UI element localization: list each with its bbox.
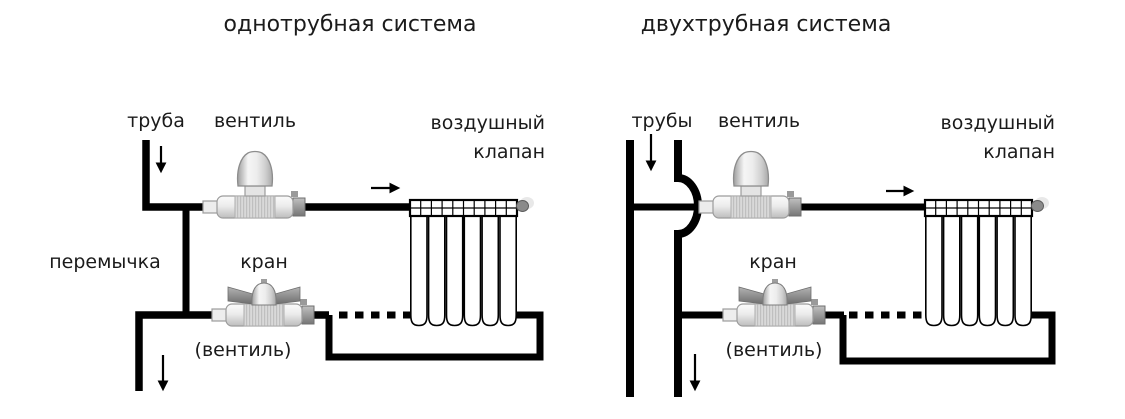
label-tap: кран xyxy=(749,251,797,273)
valve-knob-icon xyxy=(699,152,801,219)
label-pipes: трубы xyxy=(631,110,692,132)
radiator xyxy=(410,197,534,326)
heating-schematic-canvas: однотрубная система двухтрубная система … xyxy=(0,0,1125,419)
label-valve: вентиль xyxy=(214,110,296,132)
valve-knob-icon xyxy=(203,152,305,219)
label-bypass: перемычка xyxy=(49,251,161,273)
radiator xyxy=(925,197,1049,326)
tap-valve-icon xyxy=(212,279,314,326)
one-pipe-title: однотрубная система xyxy=(224,12,477,37)
two-pipe-title: двухтрубная система xyxy=(641,12,892,37)
two-pipe-diagram xyxy=(630,134,1052,397)
label-tap: кран xyxy=(240,251,288,273)
label-valve: вентиль xyxy=(718,110,800,132)
schematic-svg xyxy=(0,0,1125,419)
label-air-valve: воздушный клапан xyxy=(925,109,1055,168)
label-air-valve: воздушный клапан xyxy=(415,109,545,168)
label-tap-note: (вентиль) xyxy=(195,339,292,361)
label-tap-note: (вентиль) xyxy=(726,339,823,361)
label-pipe: труба xyxy=(127,110,185,132)
tap-valve-icon xyxy=(723,279,825,326)
